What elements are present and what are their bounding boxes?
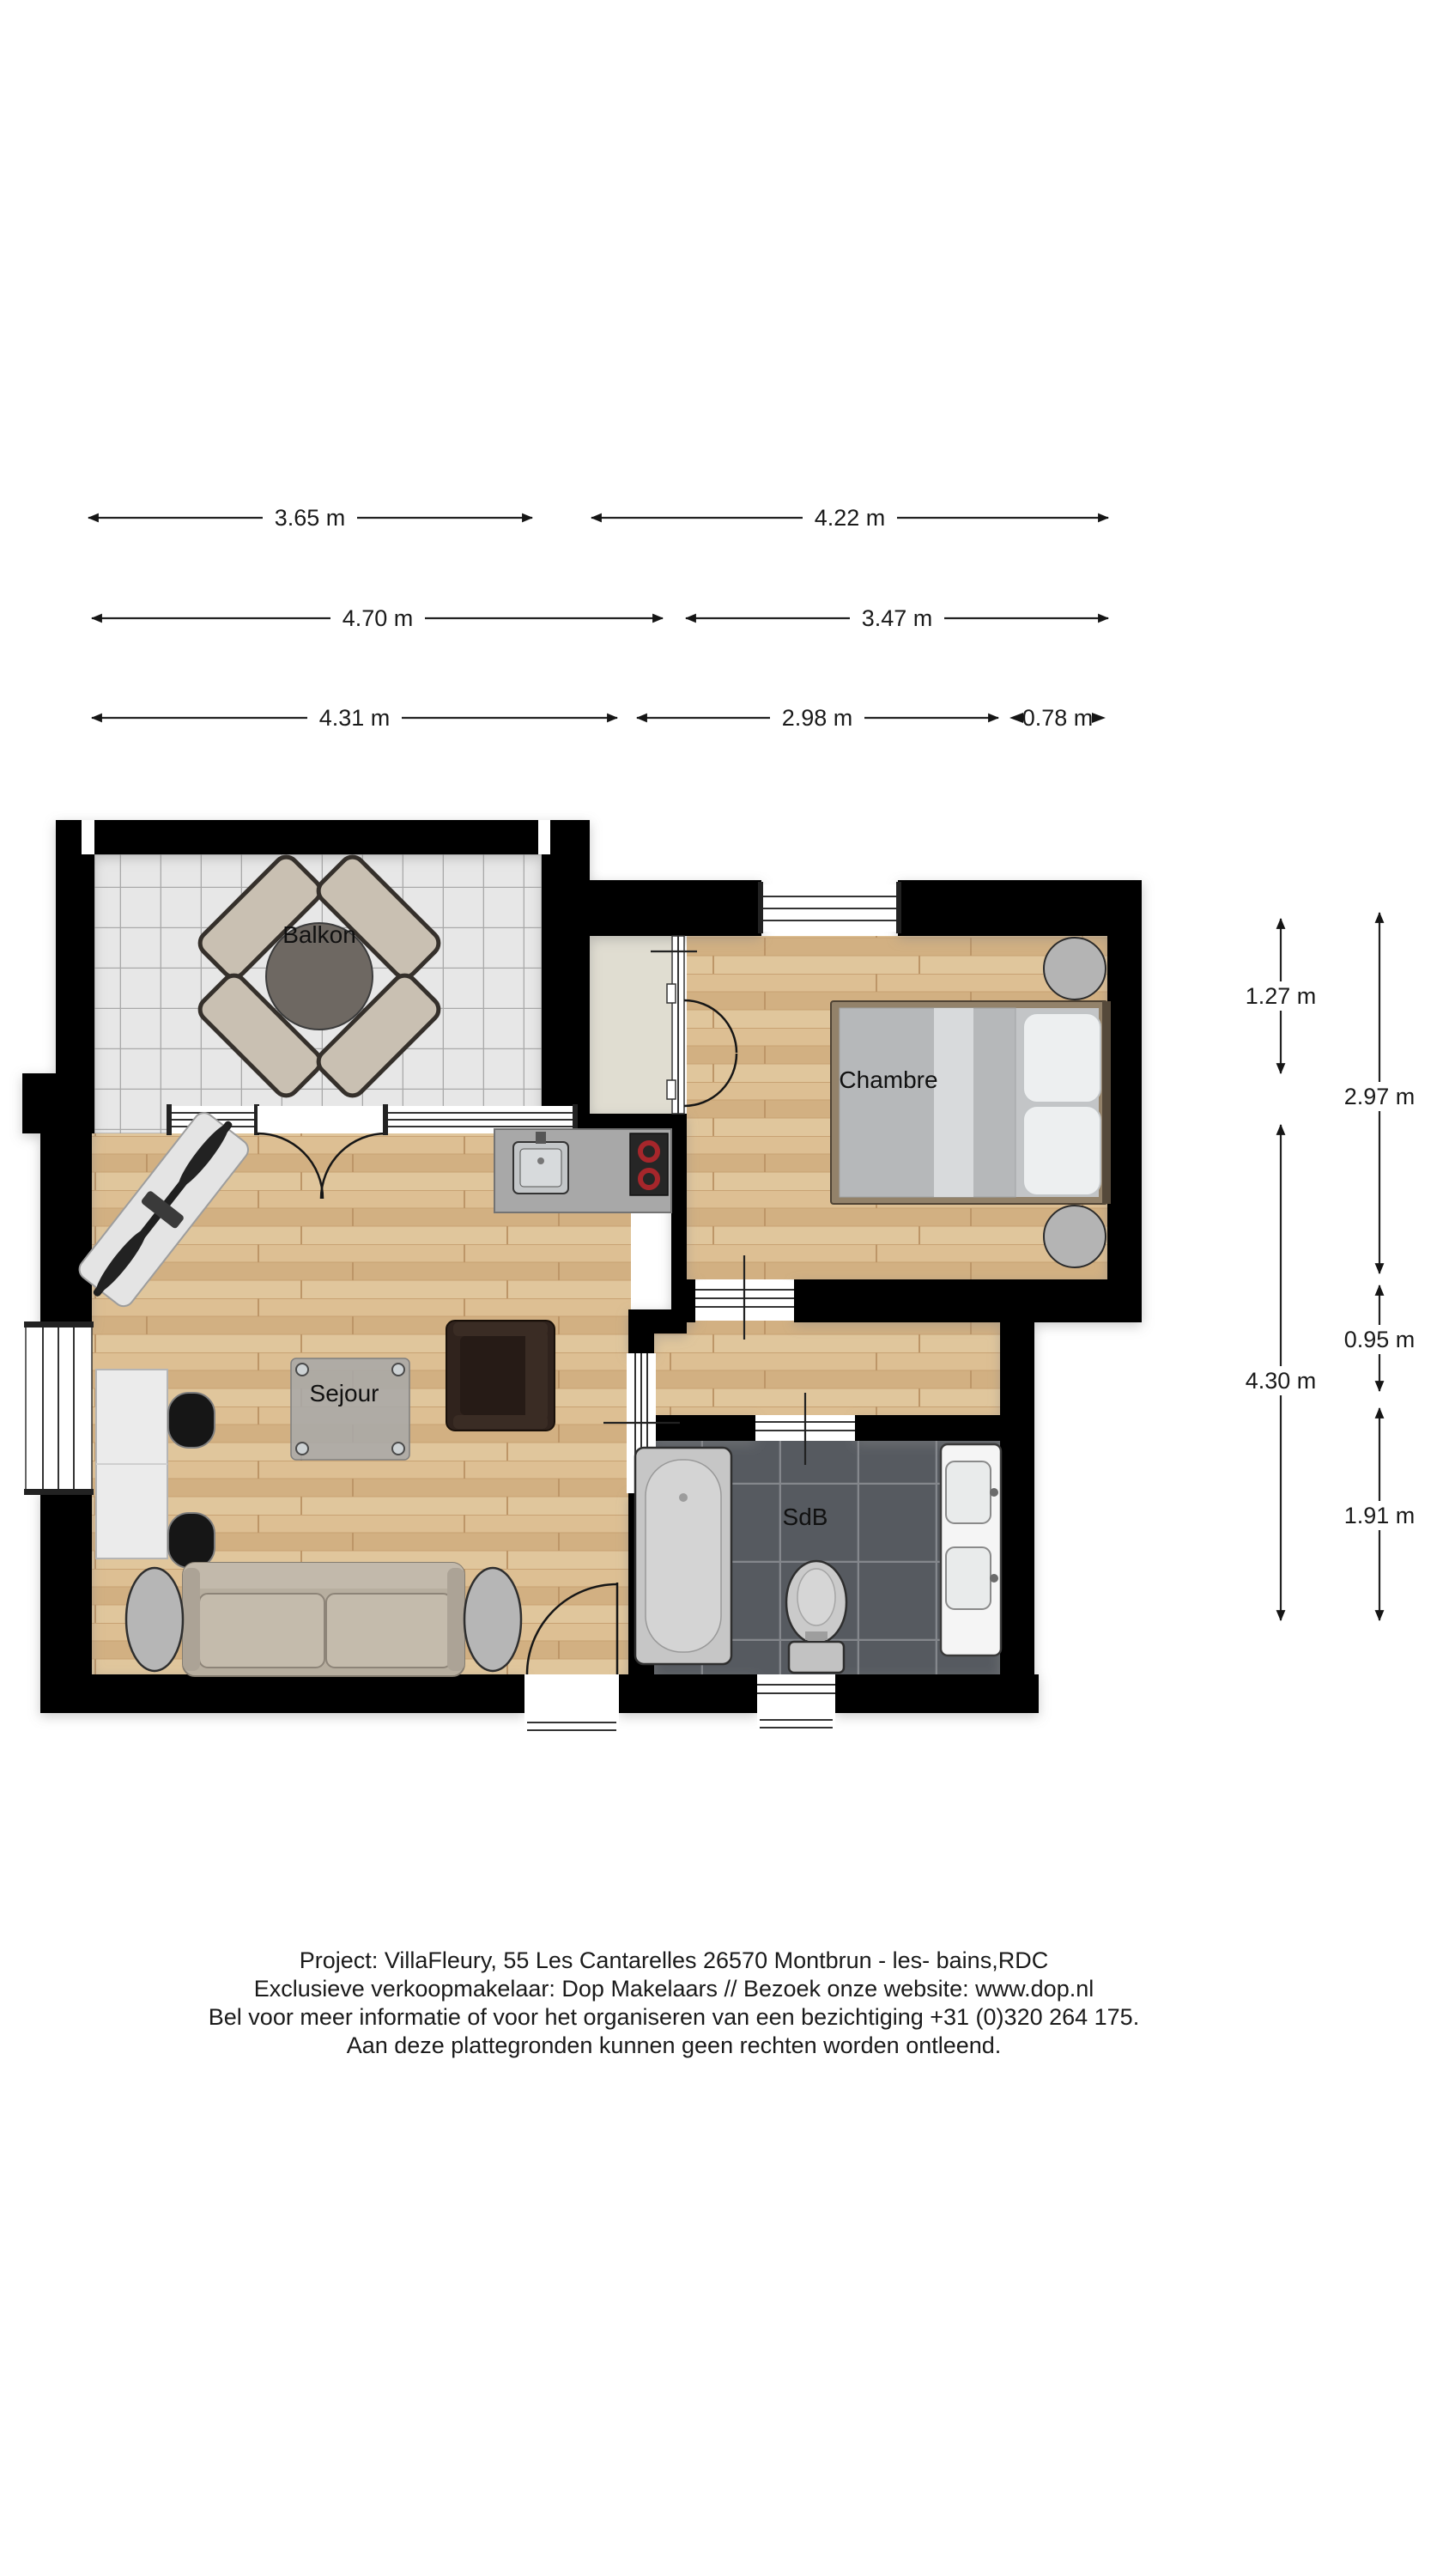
chambre-window [758, 882, 901, 933]
hall-floor [654, 1314, 1000, 1415]
mini-arrow-left [1009, 713, 1023, 723]
armchair [446, 1321, 555, 1431]
dim-label-1-27: 1.27 m [1246, 983, 1317, 1009]
footer-line-disclaimer: Aan deze plattegronden kunnen geen recht… [347, 2032, 1002, 2058]
footer-line-makelaar: Exclusieve verkoopmakelaar: Dop Makelaar… [254, 1976, 1094, 2002]
dim-label-4-30: 4.30 m [1246, 1368, 1317, 1394]
nightstand [1044, 1206, 1106, 1267]
mini-arrow-right [1092, 713, 1106, 723]
dim-label-0-78: 0.78 m [1022, 705, 1094, 731]
room-label-balkon: Balkon [282, 921, 356, 948]
footer-line-project: Project: VillaFleury, 55 Les Cantarelles… [300, 1947, 1048, 1973]
kitchen-counter [494, 1129, 671, 1212]
side-table-round [464, 1568, 521, 1671]
stove [630, 1133, 668, 1195]
coffee-table [291, 1358, 409, 1460]
dim-label-2-97: 2.97 m [1344, 1084, 1416, 1109]
right-dimension-columns: 1.27 m 4.30 m 2.97 m 0.95 m 1.91 m [1228, 913, 1433, 1620]
floorplan-drawing: 3.65 m 4.22 m 4.70 m 3.47 m 4.31 m 2.98 … [0, 0, 1449, 2576]
nightstand [1044, 938, 1106, 999]
toilet [786, 1561, 846, 1673]
floorplan-page: 3.65 m 4.22 m 4.70 m 3.47 m 4.31 m 2.98 … [0, 0, 1449, 2576]
dim-label-3-47: 3.47 m [862, 605, 933, 631]
dim-label-3-65: 3.65 m [275, 505, 346, 531]
vanity-double-sink [941, 1444, 1001, 1656]
side-table-round [126, 1568, 183, 1671]
sofa [183, 1563, 464, 1676]
dim-label-4-70: 4.70 m [343, 605, 414, 631]
room-label-sdb: SdB [783, 1504, 828, 1530]
dim-label-4-31: 4.31 m [319, 705, 391, 731]
bathtub [635, 1448, 731, 1664]
footer-line-phone: Bel voor meer informatie of voor het org… [209, 2004, 1139, 2030]
dim-label-2-98: 2.98 m [782, 705, 853, 731]
bathroom-window [757, 1674, 835, 1737]
balcony-wall-notch-right [538, 820, 550, 854]
top-dimension-rows: 3.65 m 4.22 m 4.70 m 3.47 m 4.31 m 2.98 … [88, 503, 1108, 732]
closet-floor [590, 936, 671, 1114]
dim-label-4-22: 4.22 m [815, 505, 886, 531]
sejour-window [24, 1321, 94, 1495]
desk-chair [168, 1513, 215, 1568]
footer: Project: VillaFleury, 55 Les Cantarelles… [209, 1947, 1139, 2058]
desk-chair [168, 1393, 215, 1448]
bed [831, 1001, 1111, 1204]
desk [96, 1370, 167, 1558]
room-label-sejour: Sejour [310, 1380, 379, 1406]
balcony-wall-notch-left [82, 820, 94, 854]
dim-label-0-95: 0.95 m [1344, 1327, 1416, 1352]
room-label-chambre: Chambre [839, 1066, 937, 1093]
dim-label-1-91: 1.91 m [1344, 1503, 1416, 1528]
